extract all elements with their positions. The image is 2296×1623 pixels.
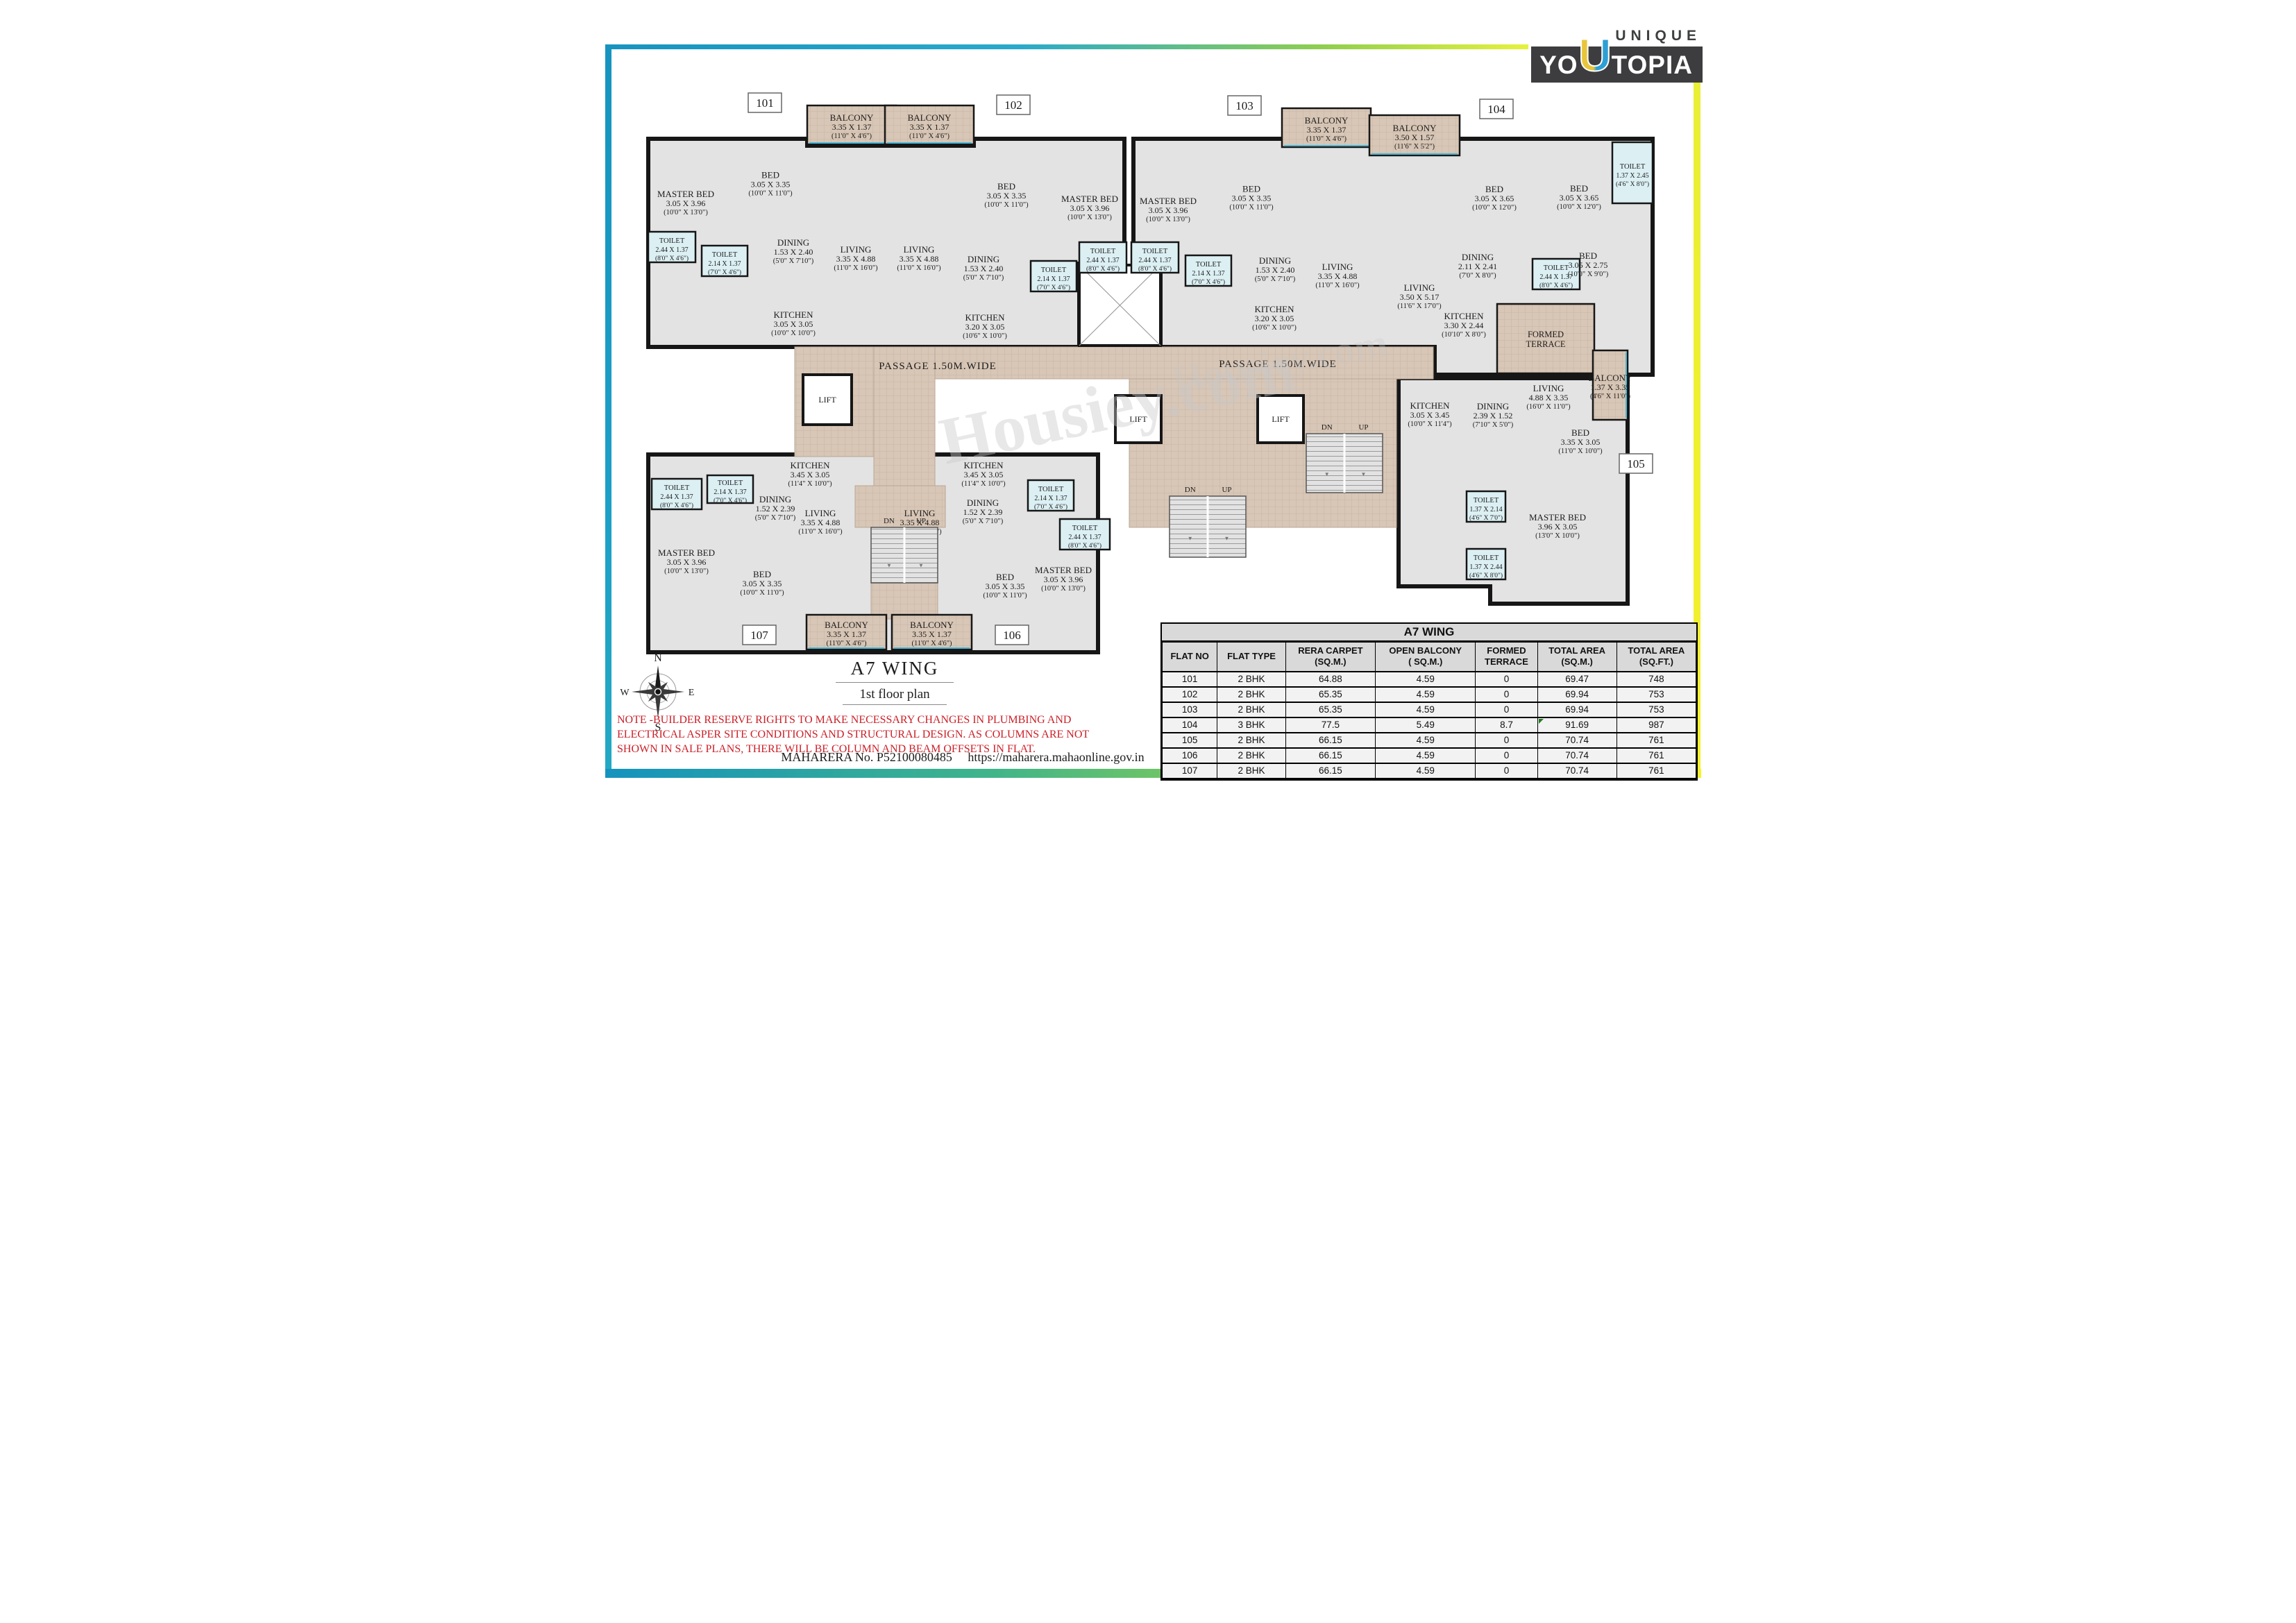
table-cell: 0 bbox=[1476, 672, 1537, 687]
plan-text: TOILET bbox=[1620, 163, 1646, 171]
plan-text: 3.05 X 3.45 bbox=[1410, 410, 1450, 420]
lift: LIFT bbox=[803, 375, 852, 425]
plan-text: FORMED bbox=[1528, 330, 1564, 339]
table-cell: 5.49 bbox=[1376, 717, 1476, 733]
flat-number-103: 103 bbox=[1228, 96, 1261, 115]
plan-text: (11'0" X 4'6") bbox=[1306, 135, 1347, 143]
plan-text: (11'0" X 4'6") bbox=[826, 640, 867, 647]
cell-flag-marker bbox=[1539, 719, 1544, 724]
plan-text: TOILET bbox=[1072, 525, 1098, 532]
table-row: 1012 BHK64.884.59069.47748 bbox=[1163, 672, 1696, 687]
plan-text: (10'0" X 13'0") bbox=[664, 568, 709, 575]
plan-text: (7'10" X 5'0") bbox=[1473, 421, 1514, 429]
plan-text: (10'6" X 10'0") bbox=[963, 332, 1007, 340]
table-cell: 69.94 bbox=[1537, 702, 1617, 717]
plan-text: (10'0" X 11'0") bbox=[983, 592, 1027, 600]
plan-text: 3.05 X 3.35 bbox=[1232, 194, 1272, 203]
table-row: 1032 BHK65.354.59069.94753 bbox=[1163, 702, 1696, 717]
plan-text: DINING bbox=[1462, 252, 1494, 262]
plan-text: 3.35 X 1.37 bbox=[1307, 125, 1347, 135]
table-cell: 3 BHK bbox=[1217, 717, 1285, 733]
flat-number-107: 107 bbox=[743, 625, 776, 645]
room-toilet-flat-105: TOILET1.37 X 2.14(4'6" X 7'0") bbox=[1467, 491, 1505, 522]
table-cell: 65.35 bbox=[1285, 687, 1375, 702]
room-toilet-flat-101: TOILET2.14 X 1.37(7'0" X 4'6") bbox=[702, 246, 748, 276]
plan-text: BED bbox=[996, 572, 1014, 582]
plan-text: 3.05 X 3.35 bbox=[751, 180, 791, 189]
plan-text: KITCHEN bbox=[965, 312, 1005, 323]
plan-text: KITCHEN bbox=[1410, 400, 1450, 411]
plan-text: 3.50 X 1.57 bbox=[1395, 133, 1435, 142]
column-header: FLAT NO bbox=[1163, 643, 1217, 672]
table-row: 1052 BHK66.154.59070.74761 bbox=[1163, 733, 1696, 748]
plan-text: (8'0" X 4'6") bbox=[660, 502, 693, 509]
plan-text: (10'0" X 13'0") bbox=[1146, 216, 1190, 223]
plan-text: (10'0" X 10'0") bbox=[771, 330, 816, 337]
plan-text: TOILET bbox=[1196, 261, 1222, 269]
plan-text: (16'0" X 11'0") bbox=[1526, 403, 1571, 411]
plan-text: (13'0" X 10'0") bbox=[1535, 532, 1580, 540]
plan-text: MASTER BED bbox=[1529, 512, 1586, 522]
room-toilet-flat-106: TOILET2.44 X 1.37(8'0" X 4'6") bbox=[1060, 519, 1110, 550]
plan-text: 2.44 X 1.37 bbox=[655, 246, 688, 254]
room-balcony-flat-103: BALCONY3.35 X 1.37(11'0" X 4'6") bbox=[1282, 108, 1371, 147]
plan-text: (5'0" X 7'10") bbox=[773, 257, 814, 265]
plan-text: (4'6" X 7'0") bbox=[1469, 514, 1503, 522]
plan-text: (8'0" X 4'6") bbox=[1068, 542, 1101, 550]
room-toilet-flat-105: TOILET1.37 X 2.44(4'6" X 8'0") bbox=[1467, 549, 1505, 579]
plan-text: 3.30 X 2.44 bbox=[1444, 321, 1484, 330]
plan-text: (11'4" X 10'0") bbox=[961, 480, 1006, 488]
table-cell: 0 bbox=[1476, 702, 1537, 717]
table-row: 1022 BHK65.354.59069.94753 bbox=[1163, 687, 1696, 702]
plan-text: KITCHEN bbox=[1254, 304, 1294, 314]
plan-text: LIVING bbox=[1322, 262, 1353, 272]
plan-text: TOILET bbox=[1544, 264, 1569, 272]
plan-text: MASTER BED bbox=[1140, 196, 1197, 206]
brand-topia-text: TOPIA bbox=[1612, 52, 1693, 78]
area-table: A7 WING FLAT NOFLAT TYPERERA CARPET(SQ.M… bbox=[1160, 622, 1698, 781]
plan-text: ▼ bbox=[1324, 471, 1330, 477]
plan-text: ▼ bbox=[1188, 535, 1193, 541]
plan-text: 1.52 X 2.39 bbox=[963, 507, 1003, 517]
table-cell: 70.74 bbox=[1537, 748, 1617, 763]
plan-title-block: A7 WING 1st floor plan bbox=[818, 658, 971, 705]
plan-text: (8'0" X 4'6") bbox=[1138, 265, 1172, 273]
plan-text: ▼ bbox=[1224, 535, 1230, 541]
floor-plan-page: MASTER BED3.05 X 3.96(10'0" X 13'0")BED3… bbox=[574, 0, 1722, 812]
plan-text: TOILET bbox=[1041, 266, 1067, 274]
room-toilet-flat-107: TOILET2.44 X 1.37(8'0" X 4'6") bbox=[652, 479, 702, 509]
plan-text: (11'4" X 10'0") bbox=[788, 480, 832, 488]
wing-title: A7 WING bbox=[836, 658, 954, 683]
plan-text: (11'6" X 5'2") bbox=[1394, 143, 1435, 151]
plan-text: LIFT bbox=[1272, 414, 1290, 424]
plan-text: ▼ bbox=[1361, 471, 1367, 477]
table-cell: 2 BHK bbox=[1217, 763, 1285, 779]
flat-number-106: 106 bbox=[995, 625, 1029, 645]
plan-text: BED bbox=[753, 569, 771, 579]
room-kitchen-flat-105: KITCHEN3.05 X 3.45(10'0" X 11'4") bbox=[1408, 400, 1452, 428]
plan-text: 3.35 X 1.37 bbox=[827, 629, 866, 639]
plan-text: (11'0" X 16'0") bbox=[897, 264, 941, 272]
plan-text: (10'0" X 9'0") bbox=[1568, 271, 1609, 278]
table-cell: 753 bbox=[1617, 687, 1696, 702]
table-cell: 65.35 bbox=[1285, 702, 1375, 717]
plan-text: (7'0" X 4'6") bbox=[708, 269, 741, 276]
table-cell: 4.59 bbox=[1376, 702, 1476, 717]
plan-text: 3.05 X 3.65 bbox=[1560, 193, 1599, 203]
plan-text: BED bbox=[1570, 183, 1588, 194]
staircase: DNUP▼▼ bbox=[1170, 486, 1246, 557]
plan-text: 3.35 X 4.88 bbox=[1318, 271, 1358, 281]
room-dining-flat-107: DINING1.52 X 2.39(5'0" X 7'10") bbox=[755, 494, 796, 522]
room-balcony-flat-104: BALCONY3.50 X 1.57(11'6" X 5'2") bbox=[1369, 115, 1460, 155]
plan-text: KITCHEN bbox=[790, 460, 830, 470]
plan-text: (10'0" X 11'4") bbox=[1408, 420, 1452, 428]
column-header: TOTAL AREA(SQ.FT.) bbox=[1617, 643, 1696, 672]
plan-text: 1.37 X 2.45 bbox=[1616, 172, 1648, 180]
plan-text: 107 bbox=[750, 629, 768, 642]
table-cell: 66.15 bbox=[1285, 733, 1375, 748]
plan-text: ▼ bbox=[886, 563, 892, 569]
plan-text: 1.37 X 3.35 bbox=[1591, 382, 1630, 392]
table-cell: 70.74 bbox=[1537, 733, 1617, 748]
plan-text: ▼ bbox=[918, 563, 924, 569]
room-dining-flat-104: DINING2.11 X 2.41(7'0" X 8'0") bbox=[1458, 252, 1497, 280]
staircase: DNUP▼▼ bbox=[871, 517, 938, 583]
rera-line: MAHARERA No. P52100080485 https://mahare… bbox=[692, 750, 1233, 765]
room-toilet-flat-107: TOILET2.14 X 1.37(7'0" X 4'6") bbox=[707, 475, 753, 504]
plan-text: 3.35 X 4.88 bbox=[801, 518, 841, 527]
room-balcony-flat-101: BALCONY3.35 X 1.37(11'0" X 4'6") bbox=[807, 105, 896, 144]
plan-text: 1.52 X 2.39 bbox=[756, 504, 795, 513]
plan-text: 3.05 X 3.96 bbox=[667, 557, 707, 567]
room-kitchen-flat-102: KITCHEN3.20 X 3.05(10'6" X 10'0") bbox=[963, 312, 1007, 340]
plan-text: 2.44 X 1.37 bbox=[660, 493, 693, 501]
table-cell: 2 BHK bbox=[1217, 733, 1285, 748]
plan-text: 3.05 X 3.35 bbox=[743, 579, 782, 588]
table-cell: 66.15 bbox=[1285, 748, 1375, 763]
plan-text: LIFT bbox=[818, 395, 836, 405]
room-kitchen-flat-107: KITCHEN3.45 X 3.05(11'4" X 10'0") bbox=[788, 460, 832, 488]
room-dining-flat-101: DINING1.53 X 2.40(5'0" X 7'10") bbox=[773, 237, 814, 265]
plan-text: (8'0" X 4'6") bbox=[655, 255, 689, 262]
flat-number-101: 101 bbox=[748, 93, 782, 112]
flat-number-105: 105 bbox=[1619, 454, 1653, 473]
room-balcony-flat-106: BALCONY3.35 X 1.37(11'0" X 4'6") bbox=[892, 615, 972, 649]
plan-text: 3.05 X 3.35 bbox=[986, 581, 1025, 591]
plan-text: 2.44 X 1.37 bbox=[1138, 257, 1171, 264]
staircase: DNUP▼▼ bbox=[1306, 423, 1383, 493]
table-cell: 0 bbox=[1476, 733, 1537, 748]
room-balcony-flat-102: BALCONY3.35 X 1.37(11'0" X 4'6") bbox=[885, 105, 974, 144]
plan-text: (4'6" X 8'0") bbox=[1616, 180, 1649, 188]
room-toilet-flat-102: TOILET2.44 X 1.37(8'0" X 4'6") bbox=[1079, 242, 1126, 273]
plan-text: 2.14 X 1.37 bbox=[714, 488, 746, 496]
plan-text: 4.88 X 3.35 bbox=[1529, 393, 1569, 402]
room-kitchen-flat-104: KITCHEN3.30 X 2.44(10'10" X 8'0") bbox=[1442, 311, 1486, 339]
plan-text: 3.96 X 3.05 bbox=[1538, 522, 1578, 532]
table-cell: 761 bbox=[1617, 748, 1696, 763]
plan-text: UP bbox=[1222, 486, 1231, 494]
plan-text: (7'0" X 4'6") bbox=[1037, 284, 1070, 291]
table-row: 1043 BHK77.55.498.791.69987 bbox=[1163, 717, 1696, 733]
plan-text: 105 bbox=[1627, 457, 1645, 470]
plan-text: DINING bbox=[1259, 255, 1291, 266]
plan-text: 3.05 X 3.96 bbox=[1149, 205, 1188, 215]
plan-text: (7'0" X 8'0") bbox=[1459, 272, 1496, 280]
plan-text: 3.45 X 3.05 bbox=[791, 470, 830, 479]
table-cell: 748 bbox=[1617, 672, 1696, 687]
plan-text: TOILET bbox=[1090, 248, 1116, 255]
brand-u-glyph: U bbox=[1577, 29, 1613, 84]
plan-text: TOILET bbox=[1038, 486, 1064, 493]
room-toilet-flat-103: TOILET2.14 X 1.37(7'0" X 4'6") bbox=[1185, 255, 1231, 286]
column-header: FORMEDTERRACE bbox=[1476, 643, 1537, 672]
plan-text: (7'0" X 4'6") bbox=[1192, 278, 1225, 286]
plan-text: (11'0" X 16'0") bbox=[834, 264, 878, 272]
plan-text: (11'6" X 17'0") bbox=[1397, 303, 1442, 310]
room-toilet-flat-104: TOILET1.37 X 2.45(4'6" X 8'0") bbox=[1612, 142, 1653, 203]
passage-floor bbox=[871, 583, 938, 619]
plan-text: 2.14 X 1.37 bbox=[1192, 270, 1224, 278]
plan-text: TOILET bbox=[664, 484, 690, 492]
floor-subtitle: 1st floor plan bbox=[843, 687, 947, 705]
plan-text: KITCHEN bbox=[773, 309, 813, 320]
flat-number-102: 102 bbox=[997, 95, 1030, 114]
plan-text: (7'0" X 4'6") bbox=[714, 497, 747, 504]
plan-text: 3.35 X 1.37 bbox=[832, 122, 872, 132]
table-cell: 101 bbox=[1163, 672, 1217, 687]
room-toilet-flat-101: TOILET2.44 X 1.37(8'0" X 4'6") bbox=[648, 232, 695, 262]
table-cell: 69.47 bbox=[1537, 672, 1617, 687]
plan-text: TOILET bbox=[1142, 248, 1168, 255]
room-kitchen-flat-101: KITCHEN3.05 X 3.05(10'0" X 10'0") bbox=[771, 309, 816, 337]
plan-text: UP bbox=[916, 517, 926, 525]
table-cell: 107 bbox=[1163, 763, 1217, 779]
plan-text: DN bbox=[1185, 486, 1196, 494]
room-dining-flat-106: DINING1.52 X 2.39(5'0" X 7'10") bbox=[963, 498, 1004, 525]
table-cell: 66.15 bbox=[1285, 763, 1375, 779]
plan-text: LIVING bbox=[805, 508, 836, 518]
brand-yo-text: YO bbox=[1539, 52, 1578, 78]
plan-text: 3.20 X 3.05 bbox=[1255, 314, 1294, 323]
plan-text: (10'0" X 11'0") bbox=[748, 190, 793, 198]
plan-text: 1.37 X 2.44 bbox=[1469, 563, 1502, 571]
plan-text: 1.37 X 2.14 bbox=[1469, 506, 1502, 513]
table-cell: 70.74 bbox=[1537, 763, 1617, 779]
room-dining-flat-103: DINING1.53 X 2.40(5'0" X 7'10") bbox=[1255, 255, 1296, 283]
plan-text: 3.35 X 1.37 bbox=[910, 122, 949, 132]
plan-text: (4'6" X 8'0") bbox=[1469, 572, 1503, 579]
plan-text: 3.05 X 3.35 bbox=[987, 191, 1027, 201]
plan-text: (8'0" X 4'6") bbox=[1086, 265, 1120, 273]
table-cell: 91.69 bbox=[1537, 717, 1617, 733]
building-block bbox=[648, 139, 1124, 347]
passage-label: PASSAGE 1.50M.WIDE bbox=[879, 361, 997, 372]
room-kitchen-flat-103: KITCHEN3.20 X 3.05(10'6" X 10'0") bbox=[1252, 304, 1297, 332]
plan-text: (11'0" X 16'0") bbox=[1315, 282, 1360, 289]
plan-text: (11'0" X 4'6") bbox=[911, 640, 952, 647]
maharera-url: https://maharera.mahaonline.gov.in bbox=[968, 750, 1144, 764]
plan-text: (5'0" X 7'10") bbox=[963, 274, 1004, 282]
plan-text: TOILET bbox=[1474, 497, 1499, 504]
table-cell: 64.88 bbox=[1285, 672, 1375, 687]
plan-text: 2.11 X 2.41 bbox=[1458, 262, 1497, 271]
plan-text: 3.05 X 3.96 bbox=[1044, 575, 1083, 584]
plan-text: (11'0" X 4'6") bbox=[832, 133, 872, 140]
table-cell: 2 BHK bbox=[1217, 687, 1285, 702]
plan-text: BED bbox=[1485, 184, 1503, 194]
column-header: FLAT TYPE bbox=[1217, 643, 1285, 672]
plan-text: DINING bbox=[968, 254, 999, 264]
plan-text: MASTER BED bbox=[657, 189, 714, 199]
plan-text: 1.53 X 2.40 bbox=[964, 264, 1004, 273]
plan-text: BED bbox=[997, 181, 1015, 192]
table-cell: 753 bbox=[1617, 702, 1696, 717]
table-cell: 8.7 bbox=[1476, 717, 1537, 733]
plan-text: TOILET bbox=[659, 237, 685, 245]
plan-text: 3.05 X 3.05 bbox=[774, 319, 813, 329]
plan-text: 3.05 X 3.96 bbox=[1070, 203, 1110, 213]
plan-text: DINING bbox=[967, 498, 999, 508]
column-header: OPEN BALCONY( SQ.M.) bbox=[1376, 643, 1476, 672]
plan-text: DN bbox=[884, 517, 895, 525]
plan-text: (5'0" X 7'10") bbox=[1255, 275, 1296, 283]
plan-text: (10'0" X 12'0") bbox=[1472, 204, 1517, 212]
plan-text: DINING bbox=[759, 494, 791, 504]
plan-text: MASTER BED bbox=[1035, 565, 1092, 575]
plan-text: DN bbox=[1322, 423, 1333, 432]
plan-text: 102 bbox=[1004, 99, 1022, 112]
plan-text: TOILET bbox=[712, 251, 738, 259]
table-cell: 105 bbox=[1163, 733, 1217, 748]
plan-text: 103 bbox=[1235, 99, 1253, 112]
plan-text: LIVING bbox=[1404, 282, 1435, 293]
column-header: TOTAL AREA(SQ.M.) bbox=[1537, 643, 1617, 672]
table-cell: 2 BHK bbox=[1217, 748, 1285, 763]
plan-text: UP bbox=[1358, 423, 1368, 432]
table-cell: 104 bbox=[1163, 717, 1217, 733]
table-cell: 0 bbox=[1476, 748, 1537, 763]
table-cell: 2 BHK bbox=[1217, 672, 1285, 687]
plan-text: BALCONY bbox=[1305, 115, 1349, 126]
plan-text: (11'0" X 16'0") bbox=[798, 528, 843, 536]
plan-text: TOILET bbox=[1474, 554, 1499, 562]
plan-text: 3.35 X 1.37 bbox=[912, 629, 952, 639]
plan-text: TOILET bbox=[718, 479, 743, 487]
plan-text: 3.20 X 3.05 bbox=[965, 322, 1005, 332]
plan-text: MASTER BED bbox=[658, 547, 715, 558]
plan-text: (11'0" X 10'0") bbox=[1558, 448, 1603, 455]
brand-unique-text: UNIQUE bbox=[1531, 28, 1701, 44]
plan-text: (10'10" X 8'0") bbox=[1442, 331, 1486, 339]
plan-text: LIVING bbox=[1533, 383, 1564, 393]
table-cell: 2 BHK bbox=[1217, 702, 1285, 717]
table-cell: 761 bbox=[1617, 763, 1696, 779]
plan-text: BED bbox=[1242, 184, 1260, 194]
plan-text: 1.53 X 2.40 bbox=[774, 247, 813, 257]
svg-text:U: U bbox=[1578, 29, 1612, 80]
plan-text: (10'0" X 12'0") bbox=[1557, 203, 1601, 211]
table-cell: 77.5 bbox=[1285, 717, 1375, 733]
room-toilet-flat-103: TOILET2.44 X 1.37(8'0" X 4'6") bbox=[1131, 242, 1179, 273]
plan-text: (10'0" X 11'0") bbox=[984, 201, 1029, 209]
plan-text: 3.05 X 3.96 bbox=[666, 198, 706, 208]
table-cell: 103 bbox=[1163, 702, 1217, 717]
table-cell: 69.94 bbox=[1537, 687, 1617, 702]
plan-text: 101 bbox=[756, 96, 774, 110]
area-table-title: A7 WING bbox=[1162, 624, 1696, 642]
plan-text: 3.05 X 3.65 bbox=[1475, 194, 1514, 203]
table-row: 1072 BHK66.154.59070.74761 bbox=[1163, 763, 1696, 779]
room-toilet-flat-106: TOILET2.14 X 1.37(7'0" X 4'6") bbox=[1028, 480, 1074, 511]
plan-text: (4'6" X 11'0") bbox=[1590, 393, 1631, 400]
brand-youtopia-box: YO U TOPIA bbox=[1531, 46, 1703, 83]
room-toilet-flat-102: TOILET2.14 X 1.37(7'0" X 4'6") bbox=[1031, 261, 1077, 291]
plan-text: 106 bbox=[1003, 629, 1021, 642]
room-balcony-flat-105: BALCONY1.37 X 3.35(4'6" X 11'0") bbox=[1589, 350, 1632, 420]
plan-text: E bbox=[689, 688, 695, 698]
plan-text: LIVING bbox=[841, 244, 872, 255]
flat-number-104: 104 bbox=[1480, 99, 1513, 119]
plan-text: 3.35 X 3.05 bbox=[1561, 437, 1601, 447]
room-dining-flat-105: DINING2.39 X 1.52(7'10" X 5'0") bbox=[1473, 401, 1514, 429]
room-dining-flat-102: DINING1.53 X 2.40(5'0" X 7'10") bbox=[963, 254, 1004, 282]
table-cell: 761 bbox=[1617, 733, 1696, 748]
plan-text: (10'0" X 13'0") bbox=[1067, 214, 1112, 221]
plan-text: 3.50 X 5.17 bbox=[1400, 292, 1440, 302]
table-cell: 0 bbox=[1476, 763, 1537, 779]
table-cell: 4.59 bbox=[1376, 748, 1476, 763]
table-cell: 4.59 bbox=[1376, 763, 1476, 779]
plan-text: LIVING bbox=[904, 244, 935, 255]
room-formed-terrace-flat-104: FORMEDTERRACE bbox=[1497, 304, 1594, 373]
plan-text: BALCONY bbox=[825, 620, 868, 630]
plan-text: (8'0" X 4'6") bbox=[1539, 282, 1573, 289]
table-cell: 987 bbox=[1617, 717, 1696, 733]
plan-text: BED bbox=[1571, 427, 1589, 438]
plan-text: 1.53 X 2.40 bbox=[1256, 265, 1295, 275]
plan-text: DINING bbox=[1477, 401, 1509, 411]
plan-text: 2.14 X 1.37 bbox=[1037, 275, 1070, 283]
plan-text: (7'0" X 4'6") bbox=[1034, 503, 1067, 511]
plan-text: (5'0" X 7'10") bbox=[755, 514, 796, 522]
plan-text: (10'0" X 11'0") bbox=[740, 589, 784, 597]
plan-text: 2.44 X 1.37 bbox=[1086, 257, 1119, 264]
plan-text: BED bbox=[1579, 250, 1597, 261]
plan-text: TERRACE bbox=[1526, 339, 1566, 349]
plan-text: BALCONY bbox=[1393, 123, 1437, 133]
table-cell: 0 bbox=[1476, 687, 1537, 702]
plan-text: 3.35 X 4.88 bbox=[900, 254, 939, 264]
plan-text: (10'0" X 11'0") bbox=[1229, 204, 1274, 212]
plan-text: W bbox=[620, 688, 630, 698]
table-cell: 4.59 bbox=[1376, 672, 1476, 687]
plan-text: BALCONY bbox=[908, 112, 952, 123]
plan-text: BED bbox=[761, 170, 779, 180]
plan-text: 104 bbox=[1487, 103, 1505, 116]
plan-text: (5'0" X 7'10") bbox=[963, 518, 1004, 525]
plan-text: (10'0" X 13'0") bbox=[664, 209, 708, 216]
plan-text: (11'0" X 4'6") bbox=[909, 133, 950, 140]
plan-text: (10'6" X 10'0") bbox=[1252, 324, 1297, 332]
plan-text: BALCONY bbox=[910, 620, 954, 630]
table-cell: 106 bbox=[1163, 748, 1217, 763]
plan-text: 3.35 X 4.88 bbox=[836, 254, 876, 264]
plan-text: MASTER BED bbox=[1061, 194, 1118, 204]
